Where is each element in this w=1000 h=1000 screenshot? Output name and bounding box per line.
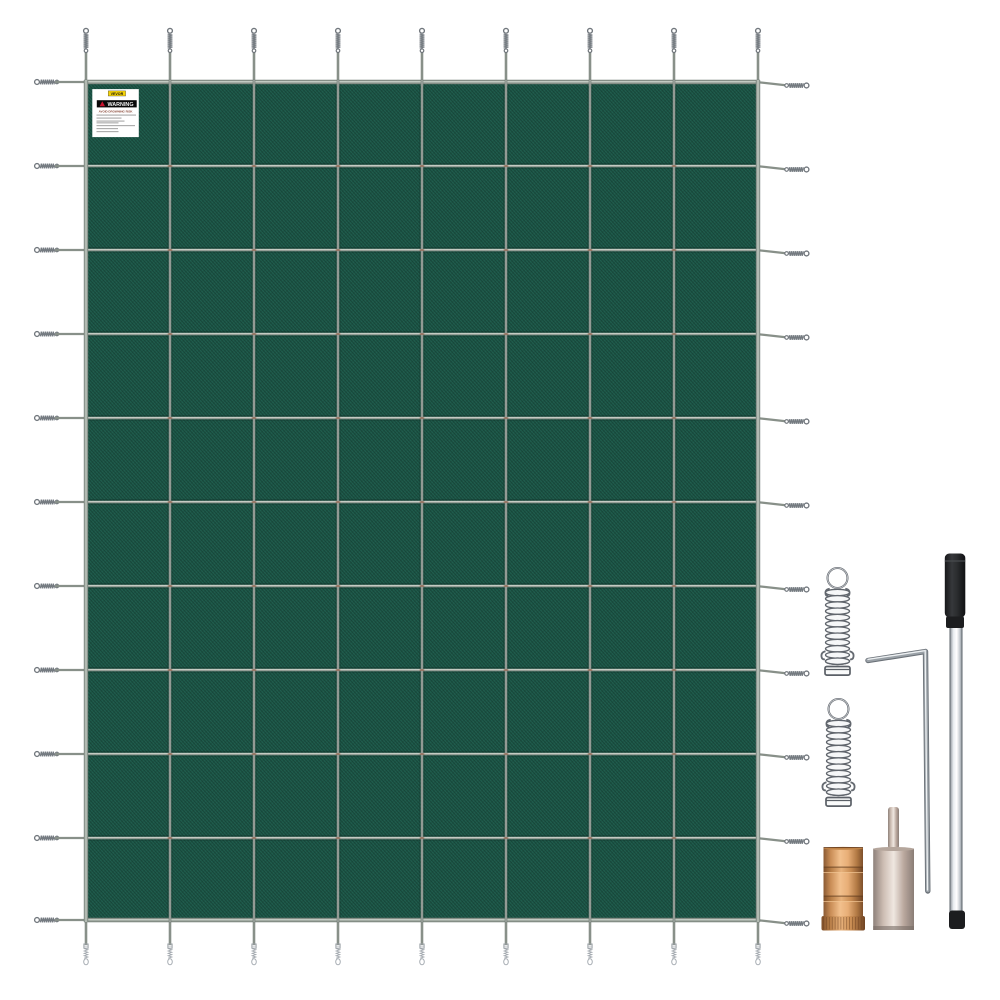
svg-text:WARNING: WARNING [107,102,133,108]
svg-text:AVOID DROWNING RISK: AVOID DROWNING RISK [99,110,134,114]
svg-text:VEVOR: VEVOR [111,92,124,96]
